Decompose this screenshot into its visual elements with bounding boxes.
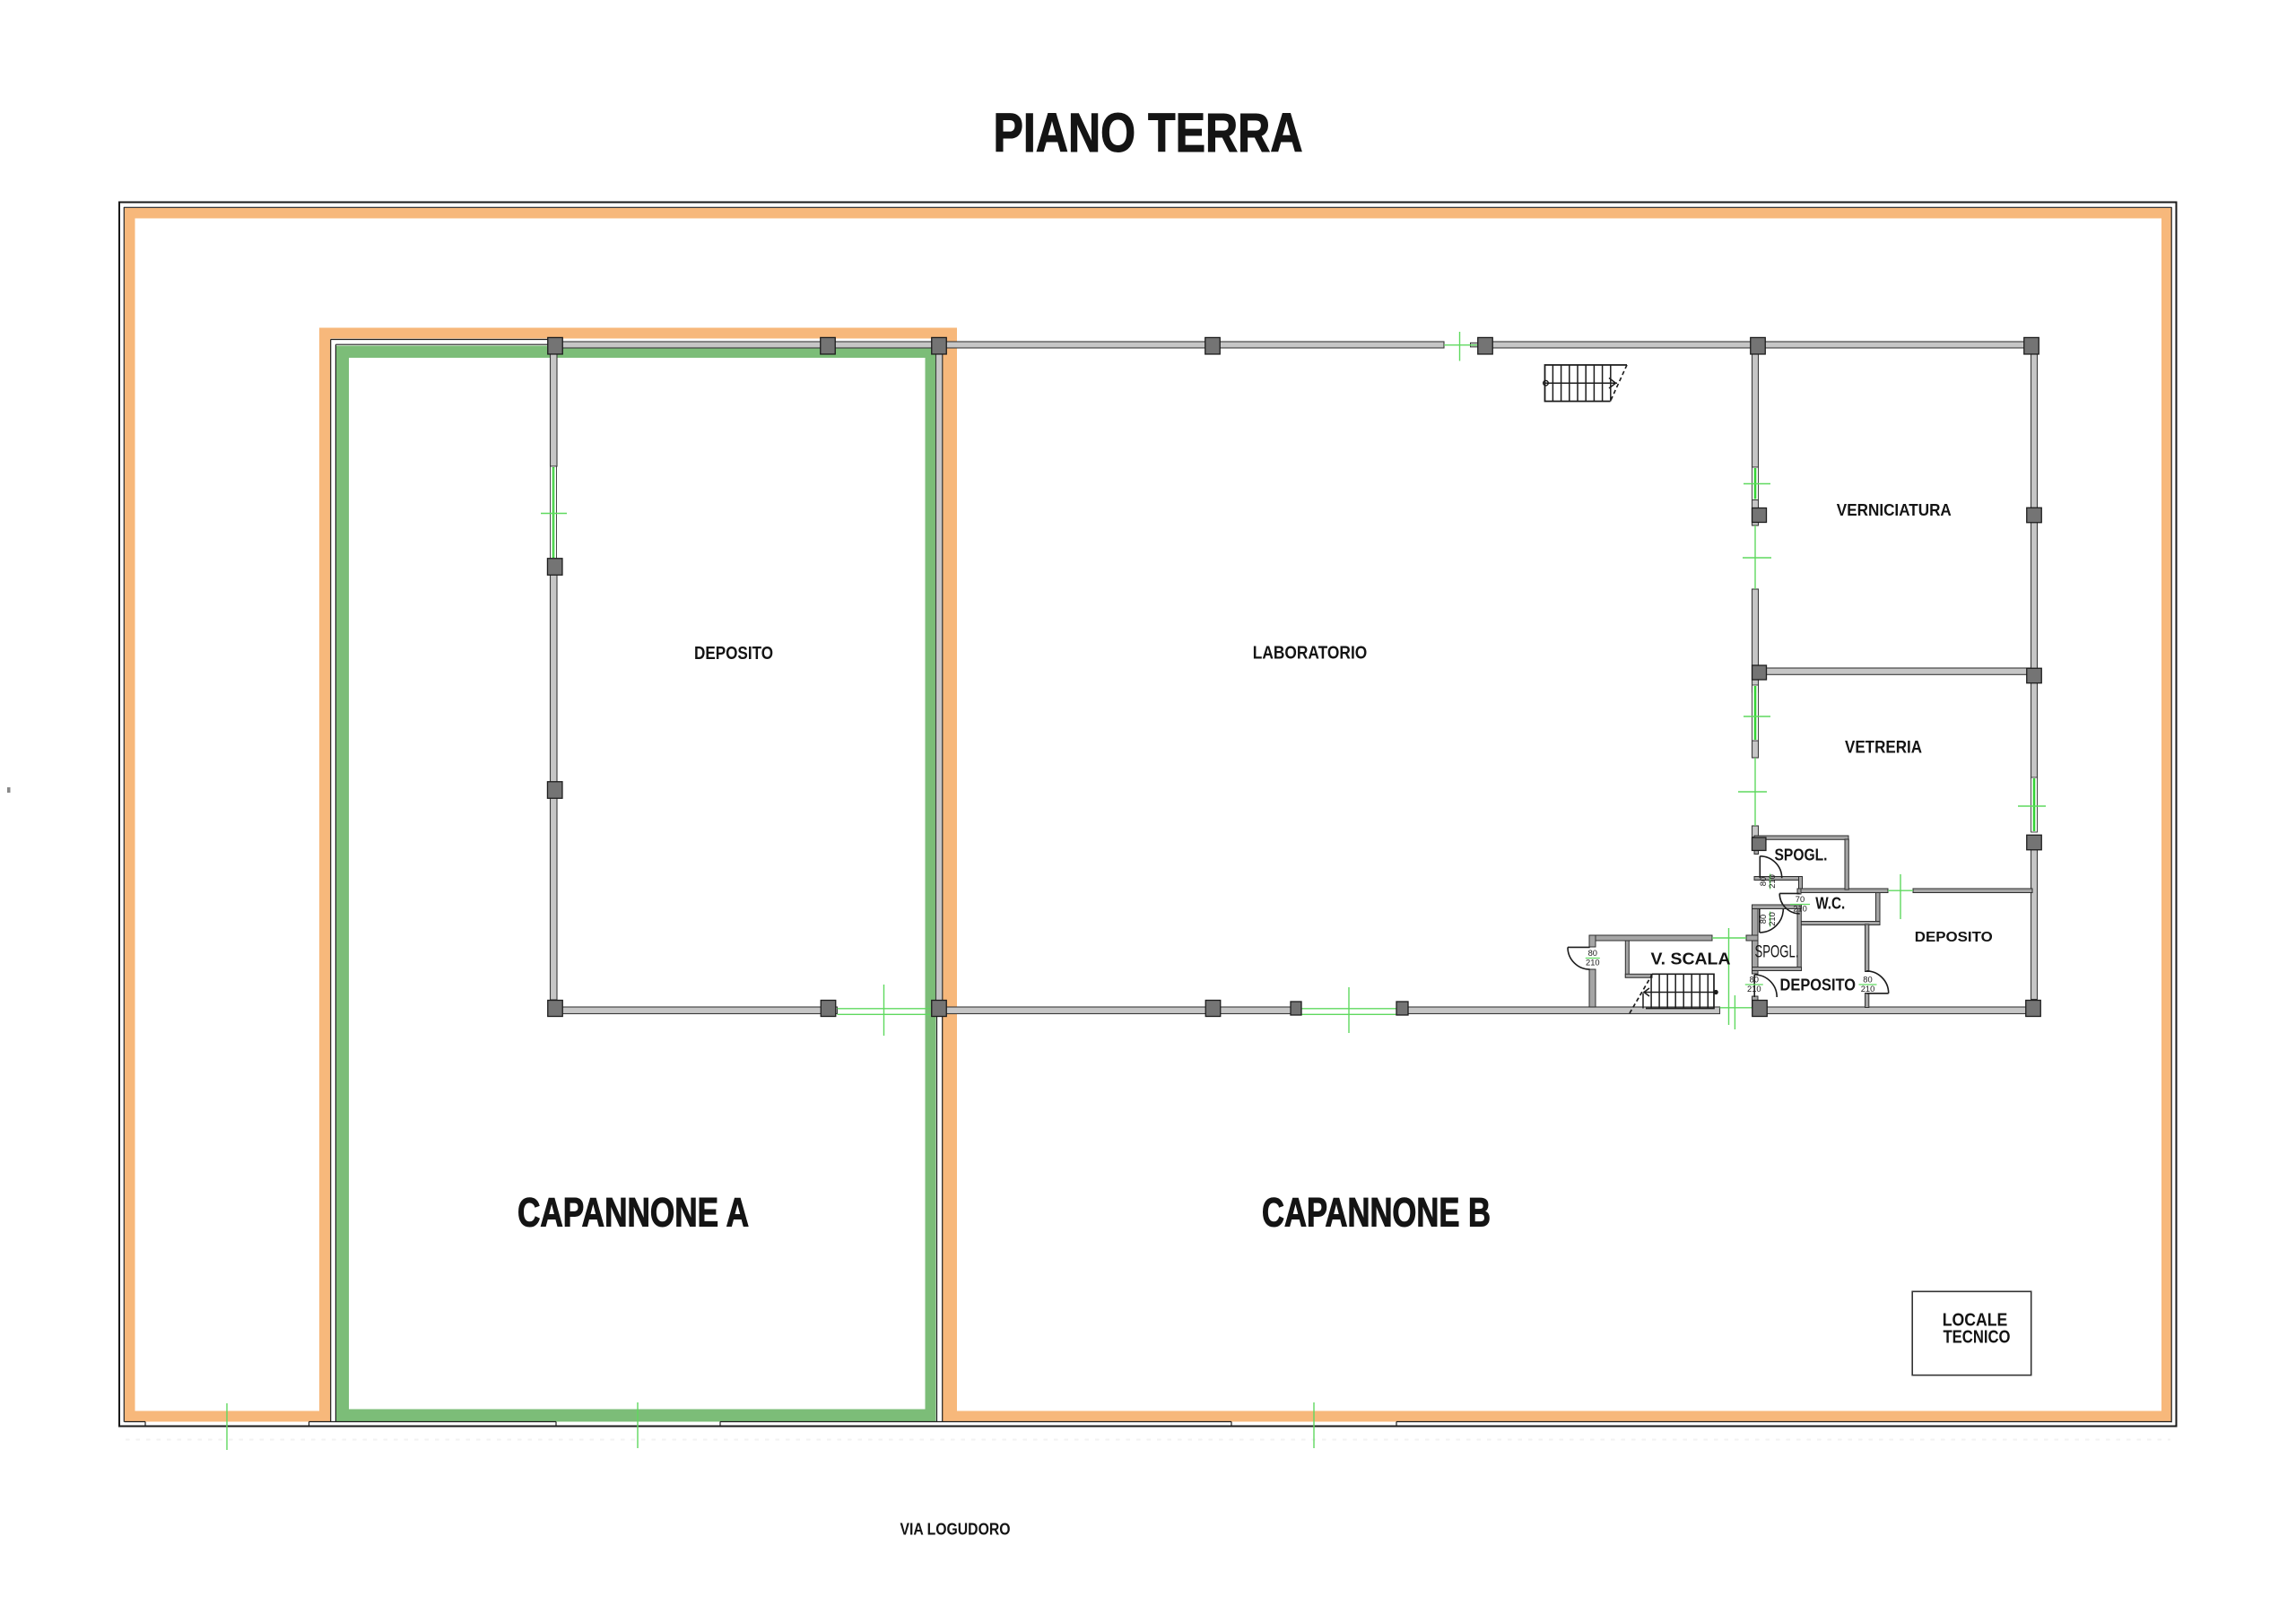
svg-text:CAPANNONE A: CAPANNONE A — [517, 1190, 749, 1236]
svg-text:70: 70 — [1796, 895, 1805, 905]
svg-text:CAPANNONE B: CAPANNONE B — [1262, 1190, 1491, 1236]
svg-text:LABORATORIO: LABORATORIO — [1253, 644, 1368, 664]
svg-text:210: 210 — [1586, 959, 1600, 968]
svg-text:PIANO TERRA: PIANO TERRA — [994, 102, 1303, 163]
svg-text:80: 80 — [1588, 949, 1597, 959]
svg-text:210: 210 — [1747, 985, 1761, 994]
svg-text:80: 80 — [1863, 976, 1872, 985]
svg-text:V. SCALA: V. SCALA — [1651, 949, 1731, 968]
svg-text:VETRERIA: VETRERIA — [1845, 739, 1922, 758]
svg-text:210: 210 — [1861, 985, 1875, 994]
svg-text:SPOGL.: SPOGL. — [1775, 846, 1828, 864]
svg-text:210: 210 — [1793, 905, 1807, 915]
svg-text:VERNICIATURA: VERNICIATURA — [1837, 501, 1952, 519]
svg-text:DEPOSITO: DEPOSITO — [1780, 976, 1857, 994]
svg-text:DEPOSITO: DEPOSITO — [1915, 930, 1993, 945]
svg-text:VIA LOGUDORO: VIA LOGUDORO — [900, 1520, 1011, 1539]
svg-text:210: 210 — [1768, 874, 1778, 889]
svg-text:DEPOSITO: DEPOSITO — [694, 644, 773, 664]
svg-text:80: 80 — [1750, 976, 1759, 985]
svg-text:SPOGL.: SPOGL. — [1755, 942, 1799, 962]
svg-text:TECNICO: TECNICO — [1944, 1327, 2011, 1348]
svg-text:210: 210 — [1768, 912, 1778, 926]
svg-text:W.C.: W.C. — [1815, 895, 1845, 913]
